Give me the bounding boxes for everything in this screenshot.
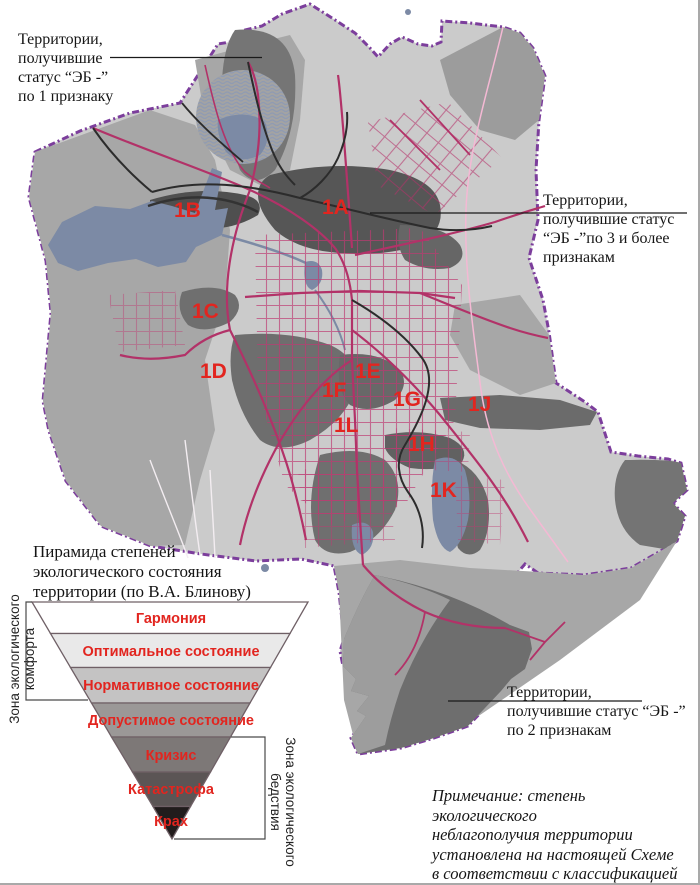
district-label-1a: 1A <box>322 196 349 219</box>
pyramid-label-catastrophe: Катастрофа <box>128 782 215 798</box>
note-line: Примечание: степень экологического <box>432 786 694 825</box>
pyramid-label-collapse: Крах <box>154 814 188 830</box>
callout-three-signs-line: “ЭБ -”по 3 и более <box>543 229 695 248</box>
callout-one-sign-line: получившие <box>18 49 148 68</box>
pyramid-label-admissible: Допустимое состояние <box>88 713 254 729</box>
note-line: установлена на настоящей Схеме <box>432 845 694 865</box>
callout-two-signs: Территории, получившие статус “ЭБ -” по … <box>507 683 697 740</box>
callout-one-sign: Территории, получившие статус “ЭБ -” по … <box>18 30 148 106</box>
comfort-zone-label: Зона экологического комфорта <box>7 594 37 724</box>
callout-two-signs-line: Территории, <box>507 683 697 702</box>
note-line: неблагополучия территории <box>432 825 694 845</box>
pyramid-level-labels: Гармония Оптимальное состояние Нормативн… <box>82 611 259 830</box>
district-label-1b: 1B <box>174 199 201 222</box>
callout-three-signs-line: Территории, <box>543 191 695 210</box>
pyramid-label-optimal: Оптимальное состояние <box>82 644 259 660</box>
district-label-1g: 1G <box>393 388 421 411</box>
district-label-1j: 1J <box>468 393 491 416</box>
pyramid-title-line: экологического состояния <box>33 562 283 582</box>
pyramid-label-normative: Нормативное состояние <box>83 678 259 694</box>
pyramid-title-line: территории (по В.А. Блинову) <box>33 582 283 602</box>
pyramid-label-crisis: Кризис <box>146 748 197 764</box>
callout-one-sign-line: Территории, <box>18 30 148 49</box>
callout-two-signs-line: по 2 признакам <box>507 721 697 740</box>
callout-three-signs: Территории, получившие статус “ЭБ -”по 3… <box>543 191 695 267</box>
district-label-1e: 1E <box>355 360 381 383</box>
comfort-zone-line: Зона экологического <box>7 594 22 724</box>
callout-three-signs-line: признакам <box>543 248 695 267</box>
callout-three-signs-line: получившие статус <box>543 210 695 229</box>
district-label-1c: 1C <box>192 300 219 323</box>
district-label-1l: 1L <box>334 414 359 437</box>
ecological-status-map-figure: 1A 1B 1C 1D 1E 1F 1G 1H 1J 1K 1L Гармони… <box>0 0 700 885</box>
callout-one-sign-line: по 1 признаку <box>18 87 148 106</box>
disaster-zone-label: Зона экологического бедствия <box>268 727 298 877</box>
pyramid-title: Пирамида степеней экологического состоян… <box>33 542 283 602</box>
disaster-zone-line: бедствия <box>268 727 283 877</box>
callout-two-signs-line: получившие статус “ЭБ -” <box>507 702 697 721</box>
city-map: 1A 1B 1C 1D 1E 1F 1G 1H 1J 1K 1L Гармони… <box>0 0 700 885</box>
pyramid-label-harmony: Гармония <box>136 611 206 627</box>
district-label-1k: 1K <box>430 479 457 502</box>
note-line: в соответствии с классификацией <box>432 864 694 884</box>
disaster-zone-line: Зона экологического <box>283 727 298 877</box>
district-label-1h: 1H <box>408 433 435 456</box>
callout-one-sign-line: статус “ЭБ -” <box>18 68 148 87</box>
pyramid-title-line: Пирамида степеней <box>33 542 283 562</box>
classification-note: Примечание: степень экологического небла… <box>432 786 694 885</box>
district-label-1f: 1F <box>322 379 347 402</box>
district-label-1d: 1D <box>200 360 227 383</box>
comfort-zone-line: комфорта <box>22 594 37 724</box>
